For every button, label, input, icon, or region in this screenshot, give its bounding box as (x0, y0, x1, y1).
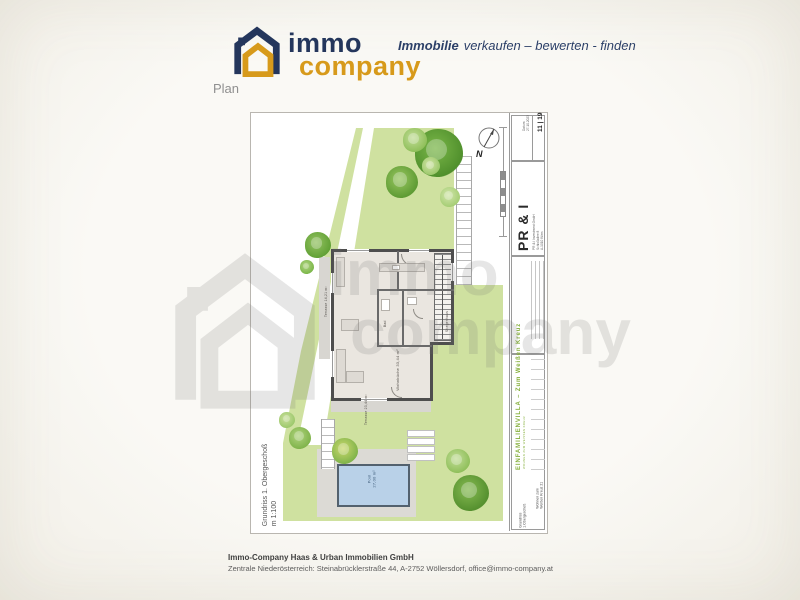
tree (440, 187, 460, 207)
scale-tick (499, 236, 507, 237)
tree (446, 449, 470, 473)
partition (377, 289, 379, 347)
wall (430, 342, 454, 345)
section-label: Plan (213, 81, 239, 96)
plan-sheet: Pool27,00 m² (250, 112, 548, 534)
stepping-stone (407, 446, 435, 453)
notes-text-lines (531, 261, 544, 339)
wc-fixture (381, 299, 390, 311)
tree (453, 475, 489, 511)
tagline-rest: verkaufen – bewerten - finden (464, 38, 636, 53)
window (451, 263, 454, 281)
logo-house-icon (228, 24, 286, 78)
project-table-rows (531, 359, 545, 477)
staircase-rail (442, 255, 443, 339)
tagline-lead: Immobilie (398, 38, 459, 53)
tagline: Immobilieverkaufen – bewerten - finden (398, 38, 636, 53)
drawing-name: Grundriss 1.Obergeschoß (518, 504, 527, 528)
stepping-stone (407, 438, 435, 445)
room-label-living: Wohnküche 33,44 m² (396, 349, 401, 391)
scale-bar-segments (500, 171, 506, 217)
tree (386, 166, 418, 198)
room-label-stairs: Stiegenhaus (445, 311, 449, 332)
label-terrace-left: Terrasse 14,21 m² (324, 286, 328, 317)
wall (430, 342, 433, 401)
partition (377, 289, 454, 291)
window (347, 249, 369, 252)
tree (300, 260, 314, 274)
cabinet (336, 257, 345, 287)
sheet-side-label: Grundriss 1. Obergeschoß m 1:100 (261, 444, 279, 526)
partition (377, 345, 432, 347)
firm-address-lines: PR & I Investment GmbH Schloßallee 8 A-1… (532, 214, 544, 250)
scale-tick (499, 127, 507, 128)
kitchen-counter (379, 263, 425, 272)
titleblock-date-divider (532, 115, 533, 161)
driveway-steps (456, 156, 472, 285)
tree (332, 438, 358, 464)
sheet-number: 11 | 19 (537, 112, 544, 132)
tree (279, 412, 295, 428)
sofa-seat (346, 371, 364, 383)
label-terrace-bottom: Terrasse 23,44 m² (364, 394, 368, 425)
project-subtitle: WOHNEN ZUM WEISSEN KREUZ (522, 416, 526, 469)
north-label: N (476, 149, 483, 159)
staircase (434, 253, 452, 341)
partition (402, 289, 404, 345)
tree (422, 157, 440, 175)
dining-table (341, 319, 359, 331)
project-address: Wohnen zum Weißen Kreuz 21 (535, 482, 544, 509)
window (331, 273, 334, 293)
window (409, 249, 429, 252)
date-field: Datum 27.10.2023 (522, 115, 530, 131)
stepping-stone (407, 430, 435, 437)
tree (289, 427, 311, 449)
footer-address: Zentrale Niederösterreich: Steinabrückle… (228, 564, 553, 573)
titleblock-divider (509, 113, 510, 531)
terrace-bottom (331, 401, 431, 412)
stepping-stone (407, 454, 435, 461)
kitchen-sink (392, 265, 400, 270)
sofa (336, 349, 346, 383)
pool-label: Pool27,00 m² (367, 470, 377, 487)
page-background: immo company Immobilieverkaufen – bewert… (0, 0, 800, 600)
wall (331, 249, 334, 401)
logo-word-company: company (299, 53, 421, 80)
room-label-bath: Bad (383, 320, 387, 327)
footer-company: Immo-Company Haas & Urban Immobilien Gmb… (228, 553, 414, 562)
bath-fixture (407, 297, 417, 305)
firm-logo-text: PR & I (515, 204, 531, 251)
tree (403, 128, 427, 152)
window (331, 351, 334, 377)
tree (305, 232, 331, 258)
